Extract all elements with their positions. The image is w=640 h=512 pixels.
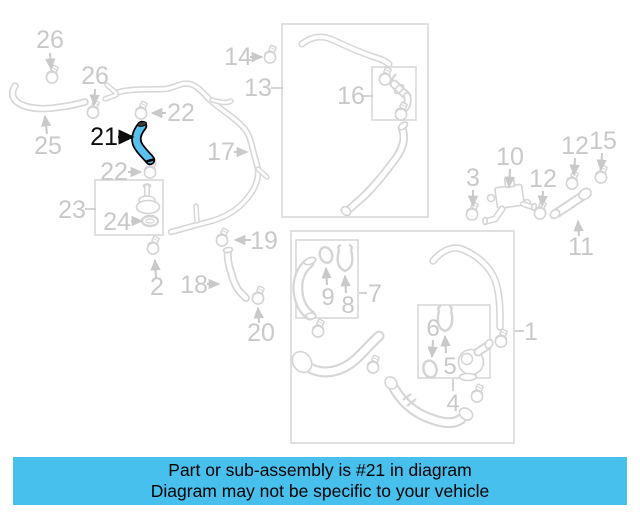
part-label-1: 1 <box>524 318 538 346</box>
part-label-19: 19 <box>250 227 278 255</box>
part-label-26-b: 26 <box>81 62 109 90</box>
hose-clamp-icon <box>264 45 276 63</box>
hose-clamp-icon <box>395 102 407 120</box>
clip-8 <box>338 245 353 271</box>
hose-clamp-icon <box>495 329 507 347</box>
part-label-15: 15 <box>589 127 617 155</box>
banner-line-2: Diagram may not be specific to your vehi… <box>151 481 489 502</box>
hose-clamp-icon <box>46 65 58 83</box>
o-ring-24 <box>142 216 158 226</box>
highlight-info-banner: Part or sub-assembly is #21 in diagram D… <box>13 457 627 505</box>
part-label-25: 25 <box>34 132 62 160</box>
o-ring-above-9 <box>318 246 334 265</box>
part-label-16: 16 <box>337 82 365 110</box>
hose-clamp-icon <box>367 355 379 373</box>
part-label-13: 13 <box>244 74 272 102</box>
part-label-3: 3 <box>466 164 480 192</box>
banner-line-1: Part or sub-assembly is #21 in diagram <box>168 460 471 481</box>
hose-1-middle <box>288 336 379 376</box>
hose-25 <box>13 86 85 109</box>
hose-clamp-icon <box>216 228 228 246</box>
part-label-21-highlighted: 21 <box>90 123 118 151</box>
pump-part <box>459 338 495 380</box>
part-label-23: 23 <box>58 196 86 224</box>
part-label-4: 4 <box>446 390 459 417</box>
hose-clamp-icon <box>312 319 324 337</box>
part-label-26-a: 26 <box>36 26 64 54</box>
hose-clamp-icon <box>471 384 483 402</box>
parts-diagram-page: 26 25 26 21 22 22 23 24 2 17 14 13 16 19… <box>0 0 640 512</box>
hose-13-bottom <box>340 121 409 218</box>
parts-diagram: 26 25 26 21 22 22 23 24 2 17 14 13 16 19… <box>0 0 640 512</box>
part-label-20: 20 <box>247 319 275 347</box>
part-label-10: 10 <box>496 143 524 171</box>
highlighted-hose-21 <box>136 121 153 162</box>
hose-18 <box>223 247 246 298</box>
part-label-8: 8 <box>341 292 354 319</box>
part-label-18: 18 <box>180 271 208 299</box>
valve-box-23 <box>137 184 160 214</box>
part-label-5: 5 <box>443 353 456 380</box>
hose-13-top <box>302 37 389 64</box>
part-label-22-b: 22 <box>100 158 128 186</box>
part-label-2: 2 <box>150 273 164 301</box>
part-label-22-a: 22 <box>167 99 195 127</box>
elbow-fitting-9 <box>298 256 317 319</box>
hose-1-bottom <box>383 374 475 422</box>
part-label-11: 11 <box>568 233 594 261</box>
hose-clamp-icon <box>135 101 147 119</box>
o-ring-6 <box>422 359 439 379</box>
part-label-12-a: 12 <box>529 165 557 193</box>
part-label-9: 9 <box>321 284 334 311</box>
part-label-12-b: 12 <box>561 132 589 160</box>
hose-clamp-icon <box>566 171 578 189</box>
part-label-6: 6 <box>426 315 439 342</box>
hose-clamp-icon <box>147 236 159 254</box>
hose-clamp-icon <box>379 67 391 85</box>
part-label-24: 24 <box>103 208 131 236</box>
part-label-14: 14 <box>224 43 252 71</box>
part-label-7: 7 <box>368 280 382 308</box>
part-label-17: 17 <box>207 138 235 166</box>
hose-clamp-icon <box>252 286 264 304</box>
clip-5 <box>438 306 452 331</box>
